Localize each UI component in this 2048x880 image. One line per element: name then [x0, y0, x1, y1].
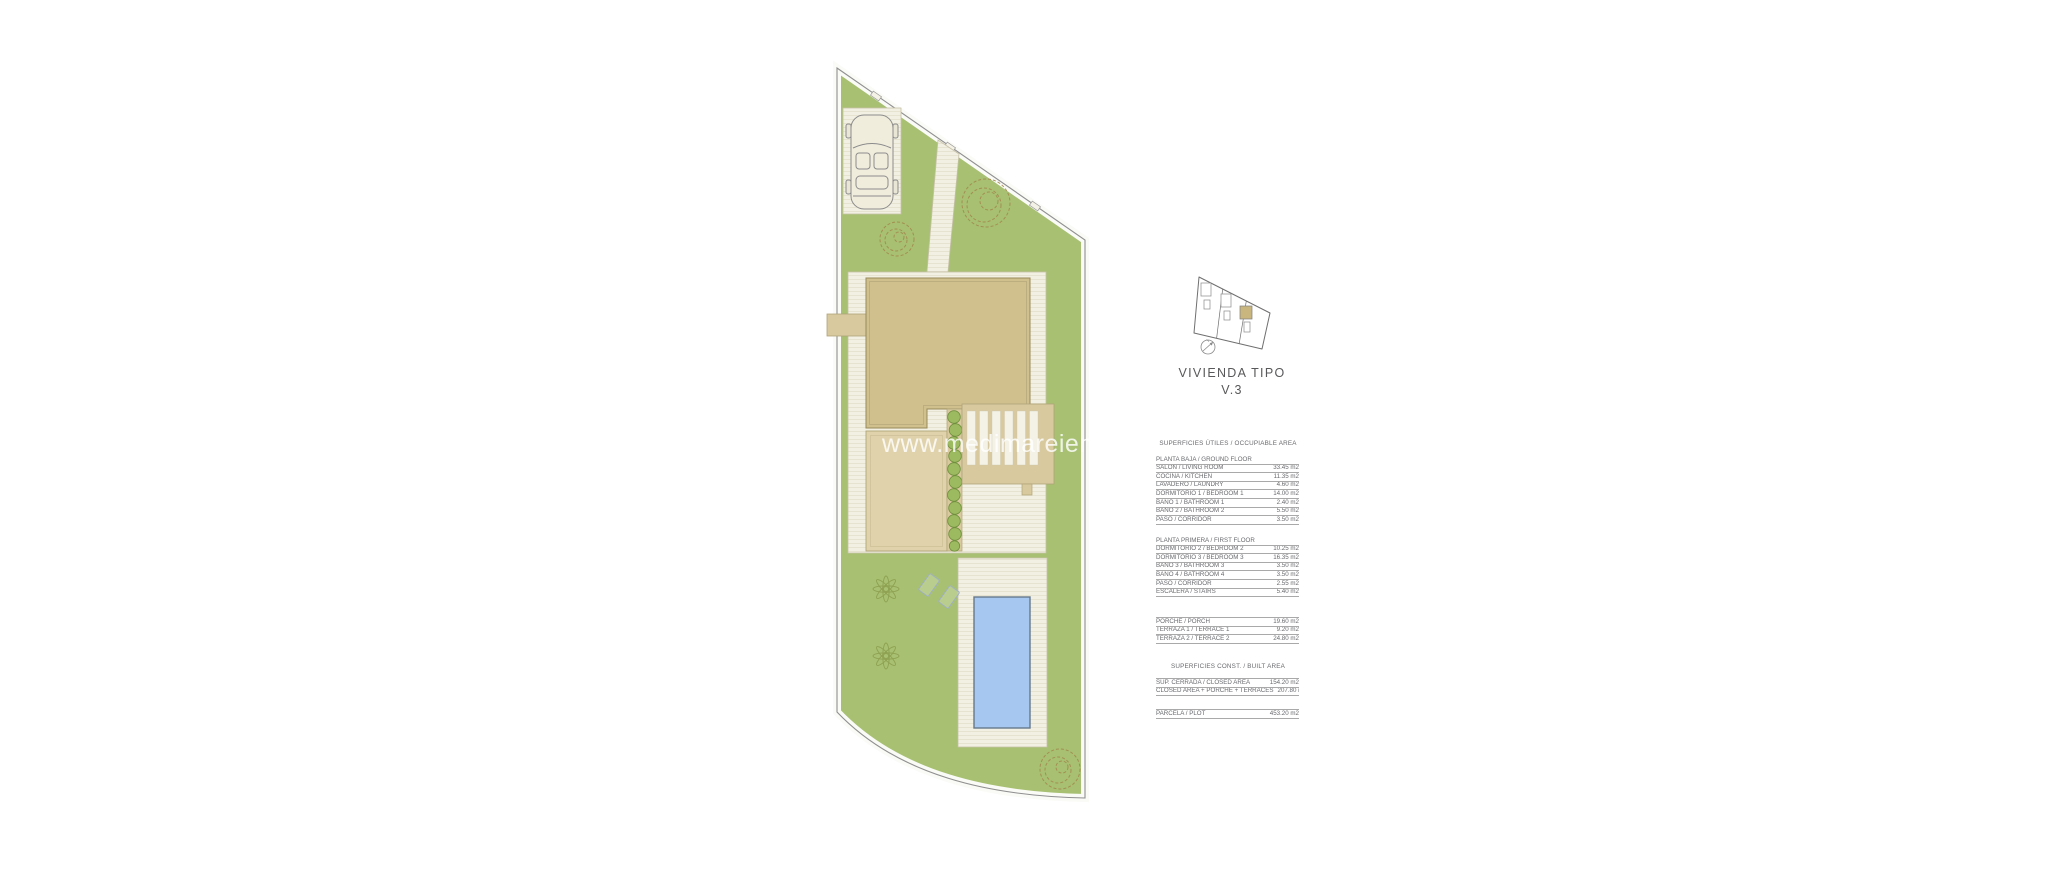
table-row: BAÑO 1 / BATHROOM 12.40 m2 — [1156, 499, 1299, 508]
table-row: BAÑO 4 / BATHROOM 43.50 m2 — [1156, 571, 1299, 580]
table-row: DORMITORIO 2 / BEDROOM 210.25 m2 — [1156, 546, 1299, 555]
row-value: 207.80 m2 — [1274, 688, 1300, 696]
table-row: PARCELA / PLOT453.20 m2 — [1156, 710, 1299, 719]
row-value: 16.35 m2 — [1269, 554, 1299, 562]
swimming-pool — [974, 597, 1030, 728]
first-floor-table: PLANTA PRIMERA / FIRST FLOORDORMITORIO 2… — [1156, 537, 1299, 597]
row-value: 9.20 m2 — [1273, 627, 1299, 635]
plan-title: VIVIENDA TIPO V.3 — [1156, 366, 1308, 398]
row-label: BAÑO 2 / BATHROOM 2 — [1156, 508, 1224, 516]
row-label: BAÑO 4 / BATHROOM 4 — [1156, 571, 1224, 579]
entry-stub — [827, 314, 867, 336]
table-row: COCINA / KITCHEN11.35 m2 — [1156, 473, 1299, 482]
row-value: 2.55 m2 — [1273, 580, 1299, 588]
table-row: PASO / CORRIDOR3.50 m2 — [1156, 516, 1299, 525]
row-value: 154.20 m2 — [1266, 679, 1299, 687]
table-row: SUP. CERRADA / CLOSED AREA154.20 m2 — [1156, 679, 1299, 688]
row-value: 24.80 m2 — [1269, 635, 1299, 643]
site-plan: www.medimareiendo — [826, 58, 1089, 812]
table-row: LAVADERO / LAUNDRY4.60 m2 — [1156, 482, 1299, 491]
row-value: 3.50 m2 — [1273, 571, 1299, 579]
row-label: SUP. CERRADA / CLOSED AREA — [1156, 679, 1250, 687]
table-header: PLANTA PRIMERA / FIRST FLOOR — [1156, 537, 1299, 546]
table-row: TERRAZA 1 / TERRACE 19.20 m2 — [1156, 627, 1299, 636]
table-row: PASO / CORRIDOR2.55 m2 — [1156, 580, 1299, 589]
table-row: ESCALERA / STAIRS5.40 m2 — [1156, 589, 1299, 598]
key-map — [1186, 274, 1286, 358]
table-row: SALÓN / LIVING ROOM33.45 m2 — [1156, 465, 1299, 474]
row-label: ESCALERA / STAIRS — [1156, 589, 1216, 597]
brochure-page: www.medimareiendo VIVIENDA TIPO V.3 SUPE… — [0, 0, 2048, 880]
row-value: 14.00 m2 — [1269, 490, 1299, 498]
compass-icon — [1201, 340, 1215, 355]
row-value: 3.50 m2 — [1273, 516, 1299, 524]
row-label: DORMITORIO 2 / BEDROOM 2 — [1156, 546, 1244, 554]
table-row: BAÑO 2 / BATHROOM 25.50 m2 — [1156, 508, 1299, 517]
plan-title-line2: V.3 — [1156, 383, 1308, 399]
row-value: 33.45 m2 — [1269, 465, 1299, 473]
row-value: 3.50 m2 — [1273, 563, 1299, 571]
row-label: COCINA / KITCHEN — [1156, 473, 1212, 481]
row-label: PARCELA / PLOT — [1156, 710, 1205, 718]
row-value: 10.25 m2 — [1269, 546, 1299, 554]
row-label: BAÑO 3 / BATHROOM 3 — [1156, 563, 1224, 571]
row-value: 11.35 m2 — [1270, 473, 1299, 481]
built-area-table: SUP. CERRADA / CLOSED AREA154.20 m2CLOSE… — [1156, 678, 1299, 696]
table-row: CLOSED AREA + PORCHE + TERRACES207.80 m2 — [1156, 688, 1299, 697]
car-icon — [846, 115, 898, 209]
row-label: LAVADERO / LAUNDRY — [1156, 482, 1223, 490]
ground-floor-table: PLANTA BAJA / GROUND FLOORSALÓN / LIVING… — [1156, 456, 1299, 525]
row-value: 19.60 m2 — [1269, 618, 1299, 626]
row-label: TERRAZA 1 / TERRACE 1 — [1156, 627, 1229, 635]
table-row: DORMITORIO 3 / BEDROOM 316.35 m2 — [1156, 554, 1299, 563]
plan-title-line1: VIVIENDA TIPO — [1156, 366, 1308, 382]
outdoor-areas-table: PORCHE / PORCH19.60 m2TERRAZA 1 / TERRAC… — [1156, 617, 1299, 644]
table-row: BAÑO 3 / BATHROOM 33.50 m2 — [1156, 563, 1299, 572]
table-header: PLANTA BAJA / GROUND FLOOR — [1156, 456, 1299, 465]
built-area-heading: SUPERFICIES CONST. / BUILT AREA — [1148, 663, 1308, 670]
row-value: 5.40 m2 — [1273, 589, 1299, 597]
occupiable-area-heading: SUPERFICIES ÚTILES / OCCUPIABLE AREA — [1148, 440, 1308, 447]
watermark: www.medimareiendo — [882, 430, 1089, 459]
row-value: 4.60 m2 — [1273, 482, 1299, 490]
row-value: 2.40 m2 — [1273, 499, 1299, 507]
row-label: BAÑO 1 / BATHROOM 1 — [1156, 499, 1224, 507]
row-label: SALÓN / LIVING ROOM — [1156, 465, 1223, 473]
row-label: CLOSED AREA + PORCHE + TERRACES — [1156, 688, 1274, 696]
row-label: PASO / CORRIDOR — [1156, 516, 1212, 524]
row-label: DORMITORIO 3 / BEDROOM 3 — [1156, 554, 1244, 562]
row-label: DORMITORIO 1 / BEDROOM 1 — [1156, 490, 1244, 498]
key-map-highlighted-unit — [1240, 306, 1252, 319]
plot-area-table: PARCELA / PLOT453.20 m2 — [1156, 709, 1299, 719]
table-row: DORMITORIO 1 / BEDROOM 114.00 m2 — [1156, 490, 1299, 499]
row-label: PORCHE / PORCH — [1156, 618, 1210, 626]
row-value: 5.50 m2 — [1273, 508, 1299, 516]
table-row: PORCHE / PORCH19.60 m2 — [1156, 618, 1299, 627]
row-label: TERRAZA 2 / TERRACE 2 — [1156, 635, 1229, 643]
row-value: 453.20 m2 — [1266, 710, 1299, 718]
row-label: PASO / CORRIDOR — [1156, 580, 1212, 588]
table-row: TERRAZA 2 / TERRACE 224.80 m2 — [1156, 635, 1299, 644]
